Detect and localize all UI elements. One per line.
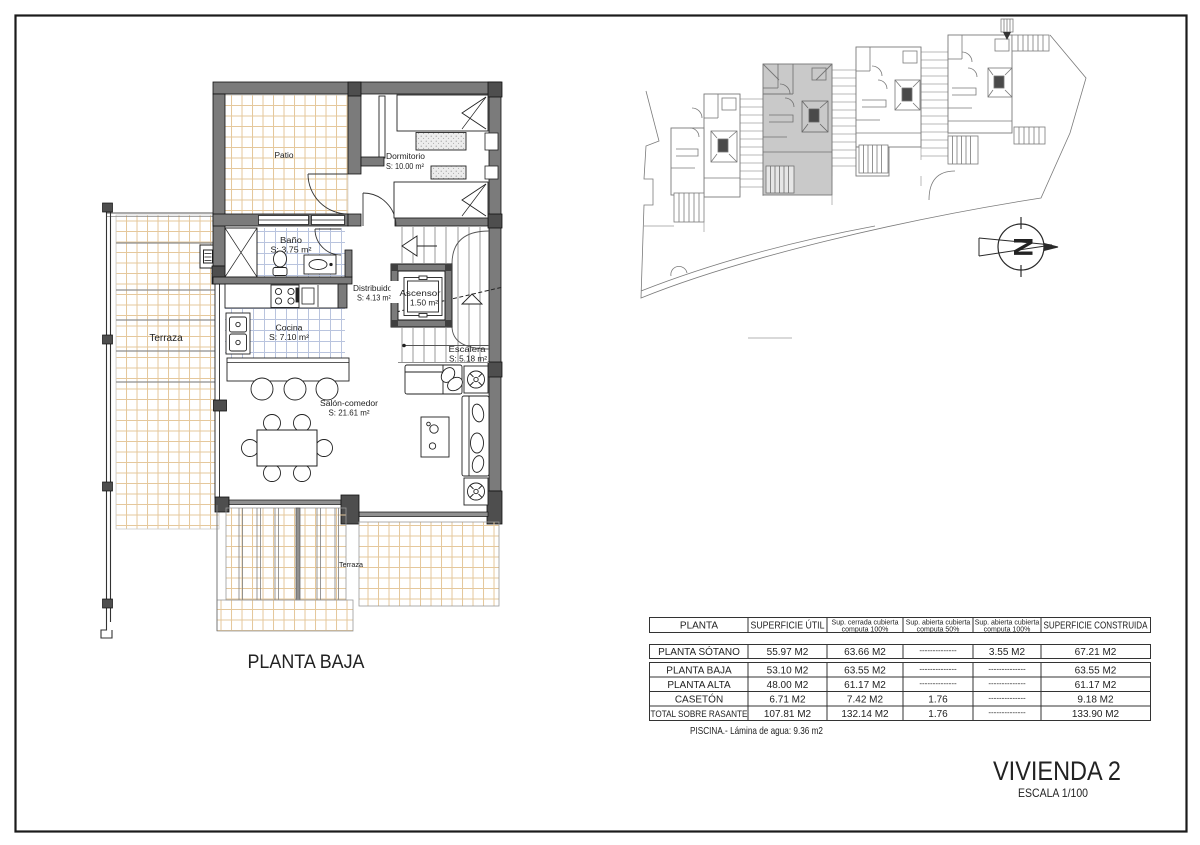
svg-text:Cocina: Cocina [276, 324, 304, 333]
svg-text:Sup. abierta cubierta: Sup. abierta cubierta [906, 620, 971, 627]
svg-text:PLANTA SÓTANO: PLANTA SÓTANO [658, 645, 740, 658]
svg-text:Sup. cerrada cubierta: Sup. cerrada cubierta [832, 620, 899, 627]
svg-text:63.55 M2: 63.55 M2 [1075, 666, 1117, 677]
svg-text:63.55 M2: 63.55 M2 [844, 666, 886, 677]
svg-text:1.50 m²: 1.50 m² [410, 299, 438, 308]
svg-text:PLANTA BAJA: PLANTA BAJA [248, 651, 365, 673]
svg-text:PISCINA.- Lámina de agua: 9.36: PISCINA.- Lámina de agua: 9.36 m2 [690, 725, 823, 737]
svg-text:--------------: -------------- [988, 694, 1026, 703]
svg-text:63.66 M2: 63.66 M2 [844, 647, 886, 658]
svg-text:3.55 M2: 3.55 M2 [989, 647, 1026, 658]
svg-text:6.71 M2: 6.71 M2 [769, 695, 806, 706]
svg-text:SUPERFICIE CONSTRUIDA: SUPERFICIE CONSTRUIDA [1044, 621, 1148, 632]
svg-text:1.76: 1.76 [928, 709, 948, 720]
svg-text:TOTAL SOBRE RASANTE: TOTAL SOBRE RASANTE [651, 709, 748, 720]
svg-text:61.17 M2: 61.17 M2 [844, 680, 886, 691]
svg-text:--------------: -------------- [919, 646, 957, 655]
svg-text:Distribuidor: Distribuidor [353, 284, 395, 293]
svg-text:VIVIENDA 2: VIVIENDA 2 [993, 756, 1121, 786]
svg-text:Baño: Baño [280, 236, 303, 245]
svg-text:Ascensor: Ascensor [400, 289, 441, 298]
svg-text:107.81 M2: 107.81 M2 [764, 709, 812, 720]
svg-text:7.42 M2: 7.42 M2 [847, 695, 884, 706]
svg-text:SUPERFICIE ÚTIL: SUPERFICIE ÚTIL [751, 619, 825, 632]
svg-text:PLANTA: PLANTA [680, 621, 718, 632]
svg-text:9.18 M2: 9.18 M2 [1077, 695, 1114, 706]
svg-text:S: 5.18 m²: S: 5.18 m² [449, 355, 487, 364]
svg-text:PLANTA ALTA: PLANTA ALTA [667, 680, 731, 691]
svg-text:67.21 M2: 67.21 M2 [1075, 647, 1117, 658]
svg-text:--------------: -------------- [988, 708, 1026, 717]
svg-text:Salón-comedor: Salón-comedor [320, 399, 378, 408]
svg-text:Terraza: Terraza [149, 333, 183, 344]
svg-text:Terraza: Terraza [339, 560, 364, 569]
svg-text:--------------: -------------- [919, 665, 957, 674]
svg-text:133.90 M2: 133.90 M2 [1072, 709, 1120, 720]
svg-text:computa 50%: computa 50% [917, 627, 960, 634]
svg-text:N: N [1008, 237, 1038, 257]
svg-text:132.14 M2: 132.14 M2 [841, 709, 889, 720]
svg-text:computa 100%: computa 100% [984, 627, 1031, 634]
svg-text:48.00 M2: 48.00 M2 [767, 680, 809, 691]
svg-text:S: 10.00 m²: S: 10.00 m² [386, 162, 424, 171]
svg-text:S: 21.61 m²: S: 21.61 m² [329, 409, 370, 418]
svg-text:--------------: -------------- [919, 679, 957, 688]
svg-text:--------------: -------------- [988, 679, 1026, 688]
svg-text:ESCALA 1/100: ESCALA 1/100 [1018, 786, 1088, 800]
svg-text:1.76: 1.76 [928, 695, 948, 706]
svg-text:Dormitorio: Dormitorio [386, 152, 426, 161]
svg-text:53.10 M2: 53.10 M2 [767, 666, 809, 677]
svg-text:CASETÓN: CASETÓN [675, 693, 723, 706]
svg-text:Sup. abierta cubierta: Sup. abierta cubierta [975, 620, 1040, 627]
svg-text:S: 3.75 m²: S: 3.75 m² [271, 246, 312, 255]
svg-text:61.17 M2: 61.17 M2 [1075, 680, 1117, 691]
svg-text:S: 7.10 m²: S: 7.10 m² [269, 333, 309, 342]
svg-text:Patio: Patio [275, 151, 295, 160]
svg-text:S: 4.13 m²: S: 4.13 m² [357, 294, 391, 303]
svg-text:PLANTA BAJA: PLANTA BAJA [666, 666, 732, 677]
svg-text:computa 100%: computa 100% [842, 627, 889, 634]
svg-text:--------------: -------------- [988, 665, 1026, 674]
svg-text:55.97 M2: 55.97 M2 [767, 647, 809, 658]
svg-text:Escalera: Escalera [449, 345, 487, 354]
